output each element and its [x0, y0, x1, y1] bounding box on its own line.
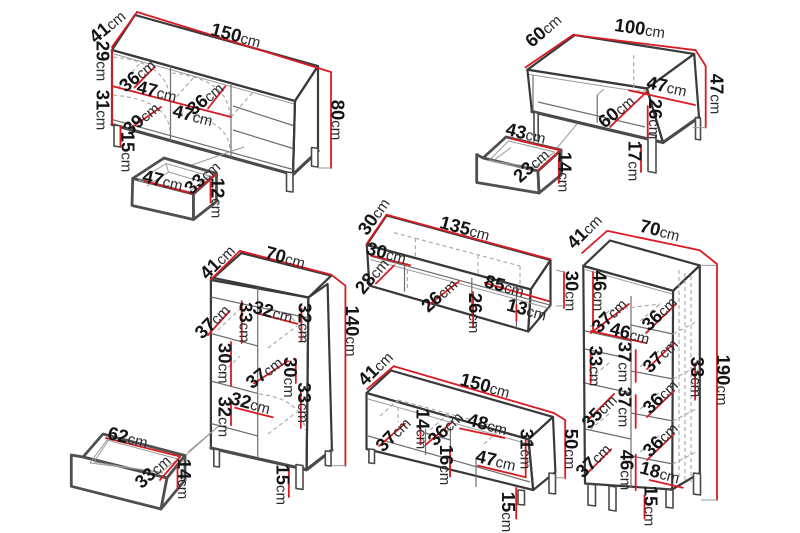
svg-text:26cm: 26cm [645, 99, 666, 140]
svg-text:26cm: 26cm [465, 293, 486, 334]
svg-text:46cm: 46cm [617, 450, 638, 491]
svg-text:190cm: 190cm [713, 355, 734, 406]
svg-text:17cm: 17cm [625, 141, 646, 182]
svg-text:33cm: 33cm [294, 382, 315, 423]
svg-text:16cm: 16cm [436, 445, 457, 486]
svg-text:14cm: 14cm [174, 459, 195, 500]
svg-text:33cm: 33cm [586, 346, 607, 387]
svg-text:29cm: 29cm [93, 41, 114, 82]
svg-text:37cm: 37cm [615, 387, 636, 428]
svg-text:15cm: 15cm [118, 132, 139, 173]
svg-text:30cm: 30cm [562, 271, 583, 312]
svg-text:15cm: 15cm [498, 492, 519, 533]
svg-text:15cm: 15cm [641, 486, 662, 527]
svg-text:12cm: 12cm [208, 178, 229, 219]
svg-text:47cm: 47cm [707, 74, 728, 115]
svg-text:80cm: 80cm [328, 100, 349, 141]
svg-text:37cm: 37cm [615, 342, 636, 383]
svg-text:15cm: 15cm [273, 464, 294, 505]
svg-text:31cm: 31cm [517, 429, 538, 470]
svg-text:46cm: 46cm [590, 271, 611, 312]
svg-text:33cm: 33cm [687, 357, 708, 398]
svg-text:31cm: 31cm [93, 90, 114, 131]
svg-text:14cm: 14cm [555, 152, 576, 193]
svg-text:140cm: 140cm [342, 306, 363, 357]
svg-text:30cm: 30cm [214, 343, 235, 384]
svg-text:32cm: 32cm [294, 303, 315, 344]
